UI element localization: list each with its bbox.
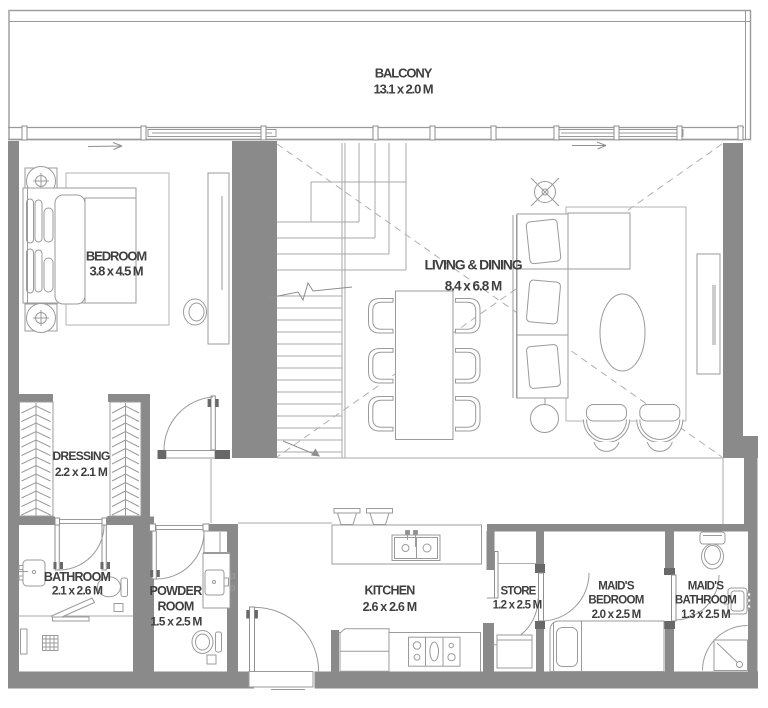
svg-text:2.1 x 2.6 M: 2.1 x 2.6 M (52, 584, 103, 598)
svg-text:1.3 x 2.5 M: 1.3 x 2.5 M (681, 609, 730, 621)
svg-text:1.5 x 2.5 M: 1.5 x 2.5 M (150, 615, 202, 629)
svg-text:8.4 x 6.8 M: 8.4 x 6.8 M (445, 279, 502, 294)
svg-text:STORE: STORE (501, 586, 537, 598)
svg-text:BEDROOM: BEDROOM (86, 249, 146, 264)
svg-text:2.0 x 2.5 M: 2.0 x 2.5 M (592, 609, 641, 621)
svg-text:1.2 x 2.5 M: 1.2 x 2.5 M (493, 600, 542, 612)
svg-text:BEDROOM: BEDROOM (588, 595, 643, 607)
svg-text:BATHROOM: BATHROOM (44, 570, 111, 584)
svg-text:MAID'S: MAID'S (688, 581, 725, 593)
svg-text:KITCHEN: KITCHEN (365, 584, 416, 598)
svg-text:BATHROOM: BATHROOM (675, 595, 736, 607)
svg-text:3.8 x 4.5 M: 3.8 x 4.5 M (90, 264, 143, 279)
svg-text:2.2 x 2.1 M: 2.2 x 2.1 M (55, 465, 108, 479)
svg-text:13.1 x 2.0 M: 13.1 x 2.0 M (373, 82, 432, 97)
svg-text:POWDER: POWDER (149, 584, 202, 598)
svg-text:LIVING & DINING: LIVING & DINING (424, 257, 522, 273)
svg-text:2.6 x 2.6 M: 2.6 x 2.6 M (363, 600, 417, 614)
svg-text:ROOM: ROOM (157, 600, 193, 614)
svg-text:BALCONY: BALCONY (375, 66, 433, 81)
svg-text:MAID'S: MAID'S (598, 581, 635, 593)
svg-text:DRESSING: DRESSING (52, 449, 109, 463)
